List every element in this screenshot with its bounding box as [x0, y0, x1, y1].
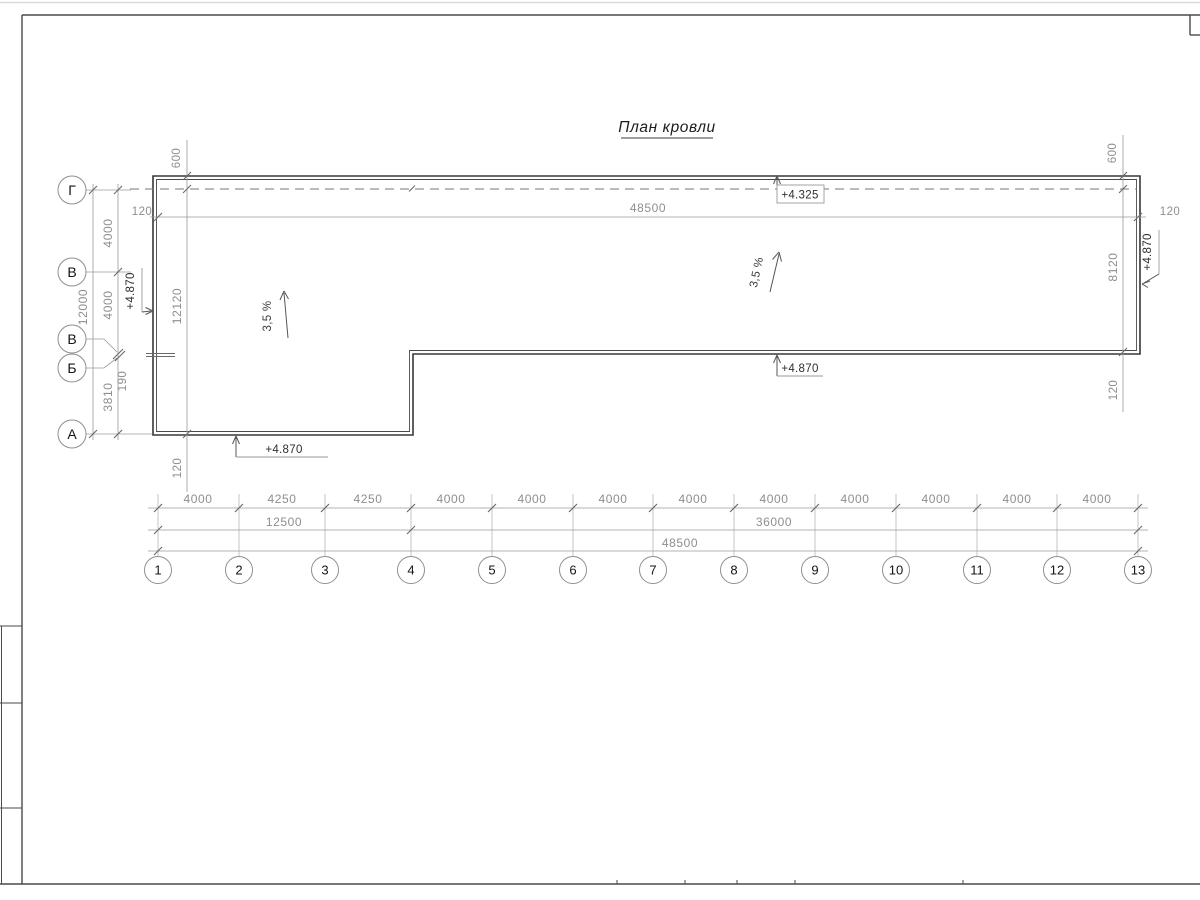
- dim-left-seg-3: 190: [117, 371, 129, 391]
- dim-b6: 4000: [598, 492, 627, 506]
- axis-bubble-11: 11: [964, 557, 991, 584]
- axis-label: 6: [569, 563, 576, 578]
- axis-label: 5: [488, 563, 495, 578]
- elevation-right-value: +4.870: [1142, 233, 1154, 270]
- sheet-frame: [0, 3, 1200, 885]
- title-text: План кровли: [618, 119, 716, 136]
- dim-b12: 4000: [1082, 492, 1111, 506]
- dim-b8: 4000: [759, 492, 788, 506]
- axis-label: А: [67, 426, 77, 442]
- dim-b11: 4000: [1002, 492, 1031, 506]
- dim-right-edge-top: 600: [1107, 143, 1119, 163]
- left-witness-line: 600 12120 120: [170, 140, 191, 492]
- axis-label: 9: [811, 563, 818, 578]
- dim-top-length: 48500: [630, 201, 666, 215]
- slope-left-value: 3,5 %: [262, 301, 274, 332]
- axis-label: 12: [1050, 563, 1064, 578]
- roof-plan-canvas: План кровли 48500 120 120 600 12120 120 …: [0, 0, 1200, 900]
- axis-label: 13: [1131, 563, 1145, 578]
- dim-b5: 4000: [517, 492, 546, 506]
- elevation-left-value: +4.870: [125, 272, 137, 309]
- axis-label: 11: [970, 563, 984, 578]
- dim-left-edge-top: 600: [171, 148, 183, 168]
- dim-right-edge-bottom: 120: [1108, 380, 1120, 400]
- axis-bubble-left-g: Г: [58, 176, 86, 204]
- dim-left-seg-2: 4000: [101, 290, 115, 319]
- slope-right-value: 3,5 %: [748, 256, 766, 289]
- axis-bubble-left-b: Б: [58, 354, 86, 382]
- elevation-bottom: +4.870: [233, 436, 329, 457]
- axis-bubble-left-v2: В: [58, 325, 86, 353]
- axis-bubble-2: 2: [226, 557, 253, 584]
- axis-label: 8: [730, 563, 737, 578]
- axis-bubble-13: 13: [1125, 557, 1152, 584]
- axis-label: 4: [407, 563, 414, 578]
- dim-bottom-total: 48500: [662, 536, 698, 550]
- dim-left-edge-bottom: 120: [172, 458, 184, 478]
- axis-bubble-7: 7: [640, 557, 667, 584]
- elevation-ridge-value: +4.325: [781, 190, 818, 202]
- dim-subtotal-right: 36000: [756, 515, 792, 529]
- dim-b7: 4000: [678, 492, 707, 506]
- dim-b9: 4000: [840, 492, 869, 506]
- dim-left-total: 12000: [76, 289, 90, 325]
- axis-label: 3: [321, 563, 328, 578]
- axis-bubble-9: 9: [802, 557, 829, 584]
- axis-bubble-8: 8: [721, 557, 748, 584]
- elevation-right: +4.870: [1142, 230, 1159, 288]
- dim-b4: 4000: [436, 492, 465, 506]
- elevation-step-value: +4.870: [781, 363, 818, 375]
- axis-bubble-5: 5: [479, 557, 506, 584]
- dim-b2: 4250: [267, 492, 296, 506]
- dim-left-seg-1: 4000: [101, 218, 115, 247]
- axis-label: 1: [154, 563, 161, 578]
- drawing-sheet: План кровли 48500 120 120 600 12120 120 …: [0, 0, 1200, 900]
- axis-label: Б: [67, 360, 76, 376]
- dim-b10: 4000: [921, 492, 950, 506]
- dim-top-offset-right: 120: [1160, 206, 1180, 218]
- axis-bubble-12: 12: [1044, 557, 1071, 584]
- dim-left-seg-4: 3810: [101, 382, 115, 411]
- elevation-ridge: +4.325: [774, 176, 825, 203]
- axis-bubble-4: 4: [398, 557, 425, 584]
- axis-label: В: [67, 264, 76, 280]
- axis-label: В: [67, 331, 76, 347]
- dim-top-offset-left: 120: [132, 206, 152, 218]
- bottom-axis-bubbles: 1 2 3 4 5 6 7 8: [145, 557, 1152, 584]
- dim-b3: 4250: [353, 492, 382, 506]
- axis-bubble-3: 3: [312, 557, 339, 584]
- axis-label: Г: [68, 182, 76, 198]
- elevation-bottom-value: +4.870: [265, 444, 302, 456]
- axis-label: 10: [889, 563, 903, 578]
- dim-subtotal-left: 12500: [266, 515, 302, 529]
- axis-bubble-left-a: А: [58, 420, 86, 448]
- axis-label: 2: [235, 563, 242, 578]
- axis-label: 7: [649, 563, 656, 578]
- axis-bubble-left-v1: В: [58, 258, 86, 286]
- dim-left-edge-middle: 12120: [170, 288, 184, 324]
- top-length-dimension: 48500 120 120: [132, 201, 1180, 221]
- dim-b1: 4000: [183, 492, 212, 506]
- drawing-title: План кровли: [618, 119, 716, 138]
- axis-bubble-10: 10: [883, 557, 910, 584]
- axis-bubble-1: 1: [145, 557, 172, 584]
- slope-right: 3,5 %: [748, 252, 782, 292]
- axis-bubble-6: 6: [560, 557, 587, 584]
- slope-left: 3,5 %: [262, 291, 289, 338]
- dashed-line-ticks: [409, 186, 415, 192]
- bottom-dimension-chains: 4000 4250 4250 4000 4000 4000 4000 4000 …: [148, 492, 1148, 556]
- dim-right-edge-middle: 8120: [1106, 252, 1120, 281]
- elevation-step: +4.870: [774, 355, 824, 376]
- elevation-left: +4.870: [125, 268, 153, 315]
